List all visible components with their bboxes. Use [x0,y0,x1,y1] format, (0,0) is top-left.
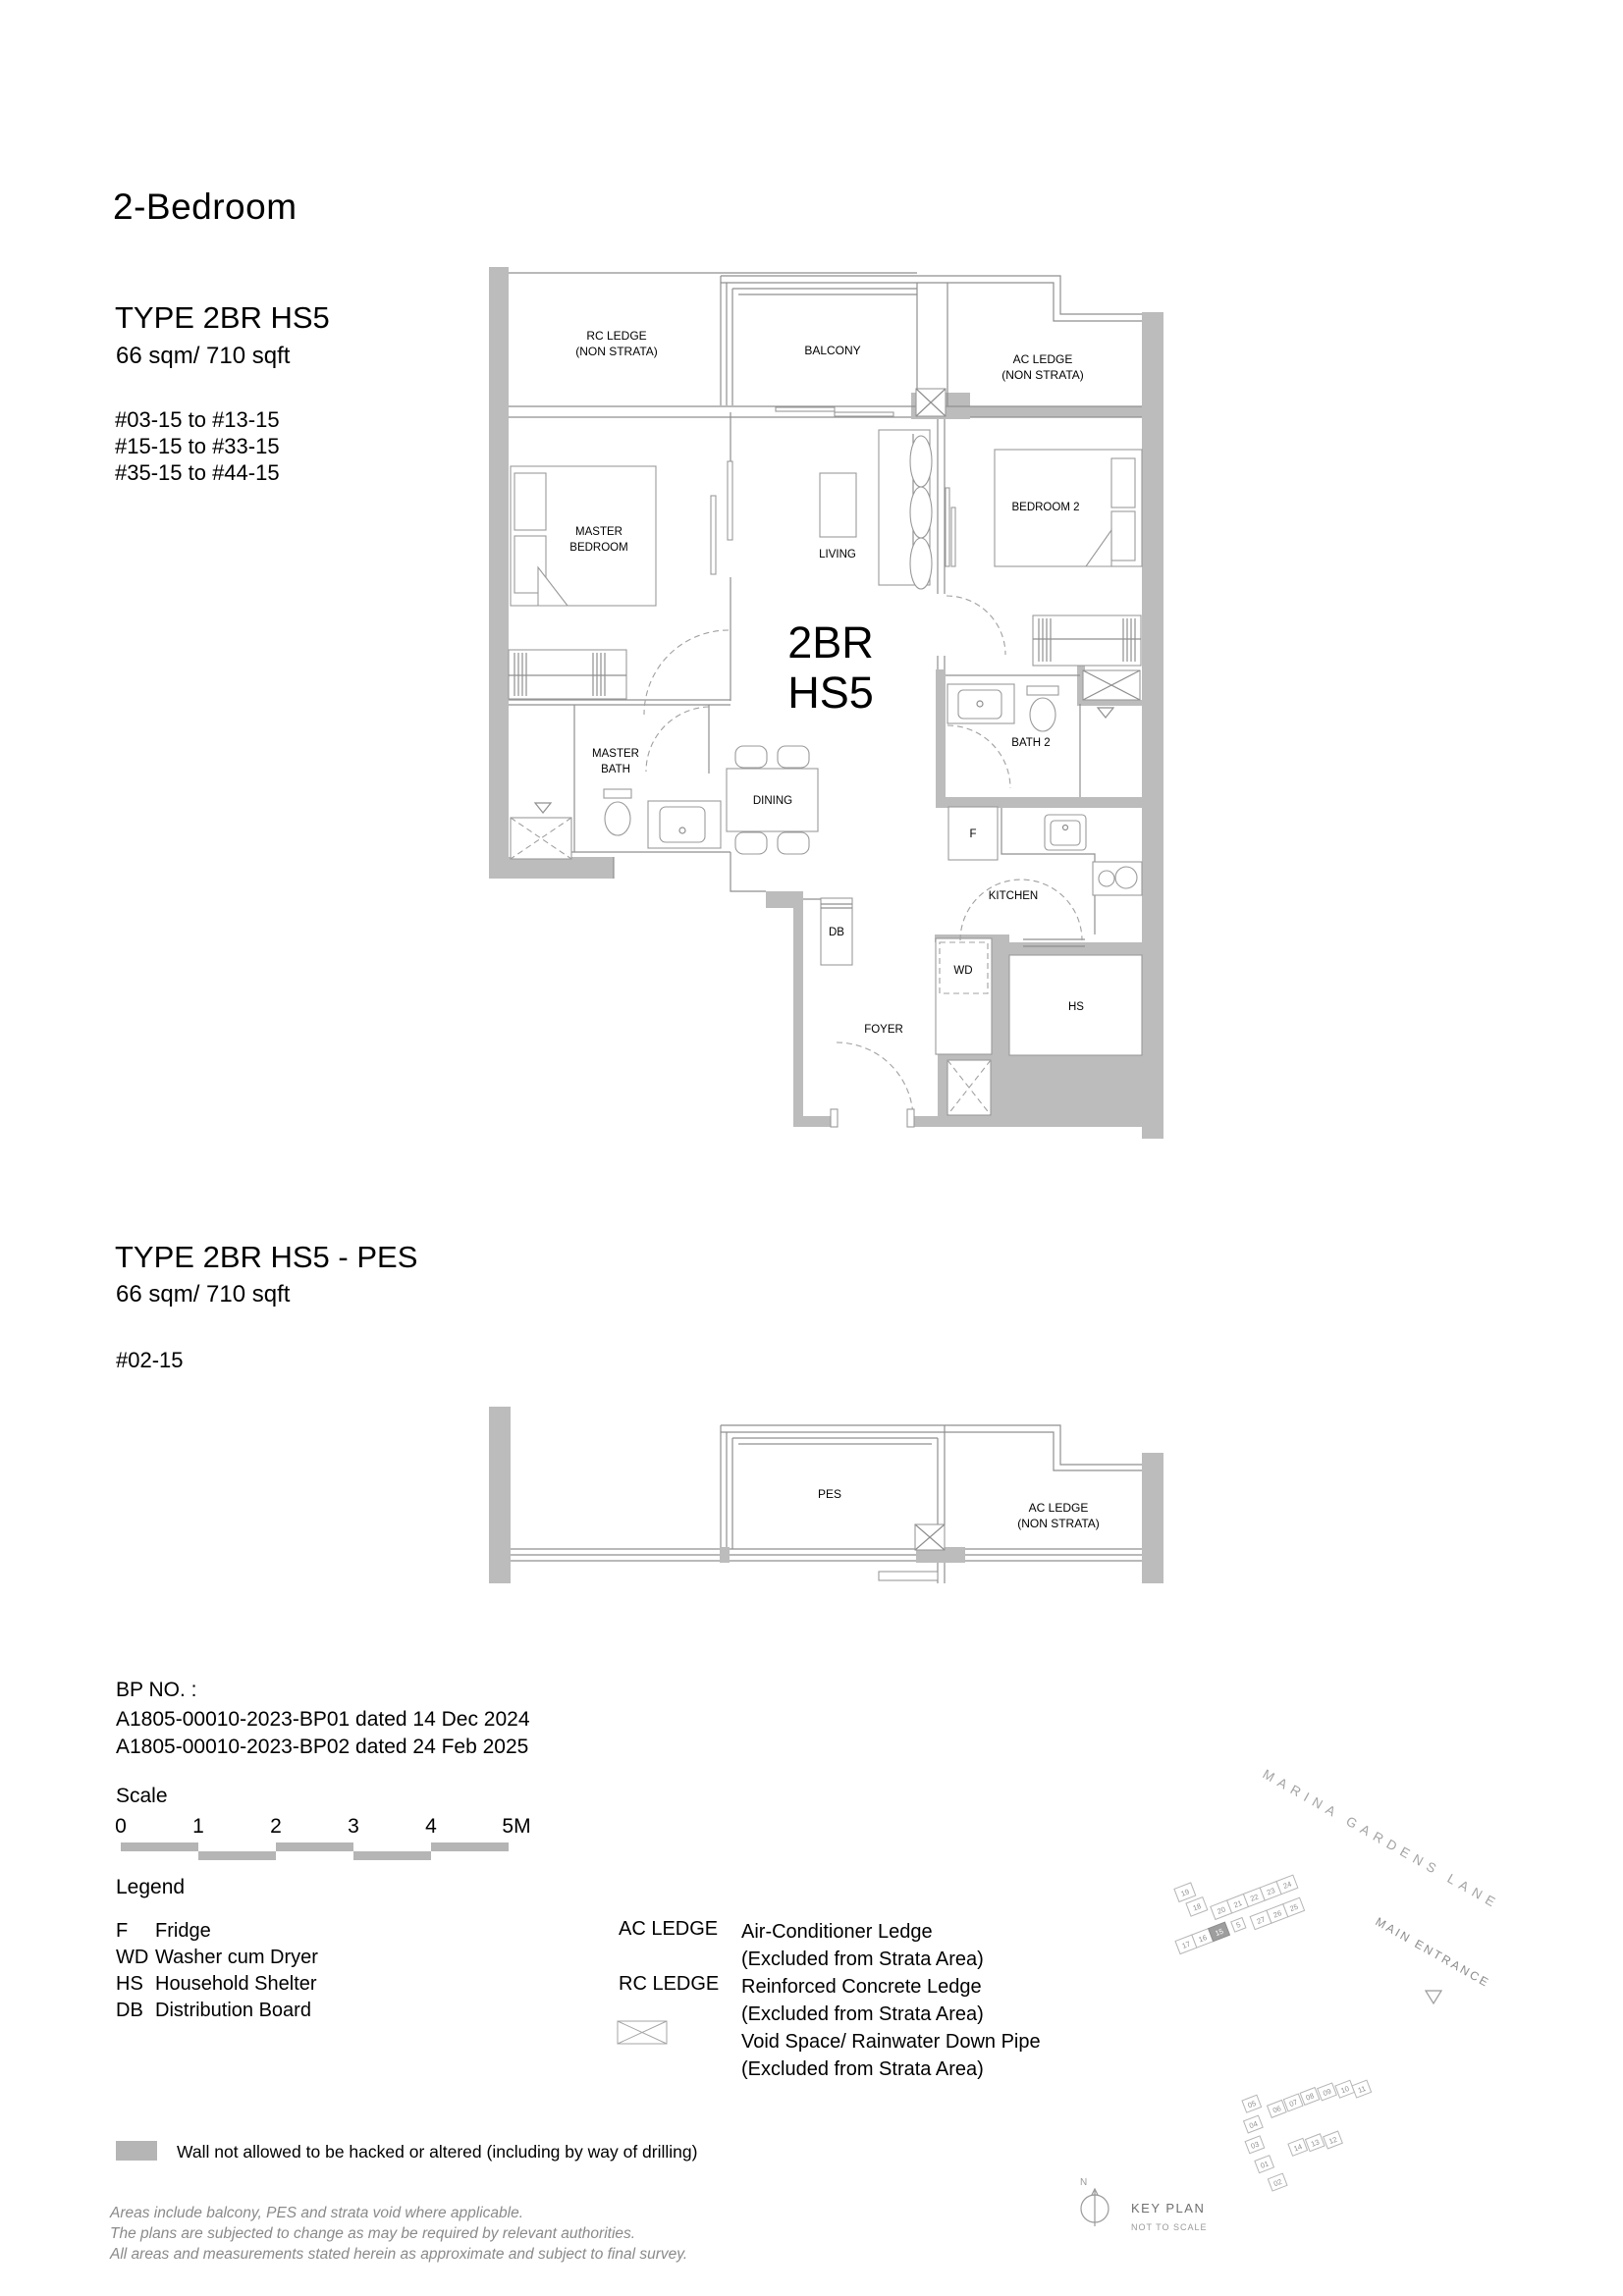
unit-a-levels: #03-15 to #13-15 #15-15 to #33-15 #35-15… [115,406,280,486]
road-label: MARINA GARDENS LANE [1261,1767,1503,1913]
bp-heading: BP NO. : [116,1679,196,1702]
legend-abbreviations: FFridge WDWasher cum Dryer HSHousehold S… [116,1918,318,2024]
keyplan-unit: 09 [1318,2083,1337,2101]
keyplan-unit: 14 [1288,2138,1308,2156]
keyplan-unit: 12 [1324,2131,1343,2149]
keyplan-unit: 5 [1231,1918,1246,1933]
legend-abbr: HS [116,1971,155,1998]
legend-item: WDWasher cum Dryer [116,1945,318,1971]
bp-line: A1805-00010-2023-BP02 dated 24 Feb 2025 [116,1734,530,1761]
keyplan-title: KEY PLAN [1131,2201,1205,2216]
scale-ticks: 0 1 2 3 4 5M [0,1815,589,1839]
room-label-db: DB [829,927,844,938]
keyplan-unit: 11 [1352,2080,1372,2098]
legend-desc: Distribution Board [155,2000,311,2021]
kitchen-fixtures [948,807,1142,895]
room-label-rc-ledge-note: (NON STRATA) [575,345,658,358]
north-label: N [1080,2177,1087,2188]
room-label-pes-ac-ledge: AC LEDGE [1029,1501,1089,1515]
unit-b-level-range: #02-15 [116,1347,184,1373]
room-label-bedroom2: BEDROOM 2 [1011,502,1079,513]
keyplan-unit: 06 [1268,2100,1287,2117]
room-label-master-bath: MASTER [592,748,639,760]
scale-tick: 0 [115,1815,127,1839]
scale-tick: 5M [502,1815,530,1839]
unit-a-level-range: #35-15 to #44-15 [115,459,280,486]
ledge-desc-line: Reinforced Concrete Ledge [741,1973,984,2001]
disclaimer-line: All areas and measurements stated herein… [110,2244,687,2265]
north-compass-icon: N [1080,2177,1109,2226]
keyplan-upper-cluster: 19 18 20 21 22 23 24 17 16 15 5 27 26 25 [1158,1847,1306,1957]
main-floor-plan: RC LEDGE (NON STRATA) BALCONY AC LEDGE (… [481,257,1178,1147]
scale-tick: 1 [192,1815,204,1839]
keyplan-unit: 05 [1242,2095,1262,2112]
keyplan-unit: 02 [1268,2173,1287,2191]
keyplan-unit: 01 [1255,2156,1274,2173]
entrance-arrow-icon [1426,1991,1441,2003]
balcony-sliding-door [776,407,893,416]
legend-ac-ledge-desc: Air-Conditioner Ledge (Excluded from Str… [741,1918,984,1973]
keyplan-unit: 08 [1300,2088,1320,2106]
room-label-living: LIVING [819,549,856,561]
room-label-fridge: F [969,828,976,840]
unit-b-area: 66 sqm/ 710 sqft [116,1281,290,1308]
keyplan-unit: 03 [1245,2136,1265,2154]
room-label-ac-ledge: AC LEDGE [1013,352,1073,366]
entrance-door-frame [831,1109,914,1127]
sofa [879,430,932,589]
legend-item: FFridge [116,1918,318,1945]
ledge-note-line: (Excluded from Strata Area) [741,2001,984,2028]
bp-line: A1805-00010-2023-BP01 dated 14 Dec 2024 [116,1706,530,1734]
keyplan-subtitle: NOT TO SCALE [1131,2222,1208,2232]
bedroom2-wardrobe [1033,615,1141,666]
unit-code-line1: 2BR [787,617,874,667]
scale-tick: 4 [425,1815,437,1839]
room-label-kitchen: KITCHEN [989,890,1038,902]
void-space-symbol [617,2020,668,2045]
keyplan-unit: 10 [1335,2080,1355,2098]
legend-desc: Fridge [155,1920,211,1942]
legend-abbr: F [116,1918,155,1945]
room-label-foyer: FOYER [864,1024,903,1036]
room-label-master-bedroom-2: BEDROOM [569,542,627,554]
unit-code-line2: HS5 [787,667,874,718]
page-title: 2-Bedroom [113,187,298,228]
master-wardrobe [509,650,626,699]
tv-console [820,473,856,537]
ledge-note-line: (Excluded from Strata Area) [741,2056,1041,2083]
legend-desc: Household Shelter [155,1973,317,1995]
scale-tick: 3 [348,1815,359,1839]
room-label-balcony: BALCONY [804,344,860,357]
pes-void-box [915,1524,945,1550]
room-label-rc-ledge: RC LEDGE [586,329,646,343]
bedroom2-sliding-door [946,488,955,566]
room-label-ac-ledge-note: (NON STRATA) [1001,368,1084,382]
unit-a-level-range: #03-15 to #13-15 [115,406,280,433]
key-plan-unit: 04 [1244,2115,1264,2133]
master-bedroom-sliding-door [711,461,732,574]
scale-heading: Scale [116,1785,168,1808]
keyplan-unit: 18 [1186,1897,1208,1917]
room-label-hs: HS [1068,1001,1084,1013]
room-label-dining: DINING [753,795,792,807]
pes-slider [879,1572,938,1580]
unit-a-level-range: #15-15 to #33-15 [115,433,280,459]
legend-heading: Legend [116,1876,185,1899]
keyplan-unit: 19 [1174,1883,1196,1902]
disclaimer-line: The plans are subjected to change as may… [110,2223,687,2244]
legend-void-desc: Void Space/ Rainwater Down Pipe (Exclude… [741,2028,1041,2083]
legend-desc: Washer cum Dryer [155,1947,318,1968]
legend-item: HSHousehold Shelter [116,1971,318,1998]
keyplan-lower-cluster: 05 04 03 06 07 08 09 10 11 01 14 13 12 0… [1231,2056,1392,2194]
key-plan: MARINA GARDENS LANE MAIN ENTRANCE 19 18 … [1041,1747,1551,2277]
room-label-pes-ac-ledge-note: (NON STRATA) [1017,1517,1100,1530]
keyplan-unit: 07 [1283,2094,1303,2111]
unit-b-levels: #02-15 [116,1347,184,1373]
room-label-bath2: BATH 2 [1011,737,1050,749]
room-label-master-bedroom: MASTER [575,526,622,538]
room-label-master-bath-2: BATH [601,764,630,775]
floorplan-page: 2-Bedroom TYPE 2BR HS5 66 sqm/ 710 sqft … [0,0,1623,2296]
bp-lines: A1805-00010-2023-BP01 dated 14 Dec 2024 … [116,1706,530,1761]
disclaimer-line: Areas include balcony, PES and strata vo… [110,2203,687,2223]
main-entrance-label: MAIN ENTRANCE [1374,1914,1493,1990]
disclaimer-block: Areas include balcony, PES and strata vo… [110,2203,687,2265]
legend-item: DBDistribution Board [116,1998,318,2024]
ledge-desc-line: Air-Conditioner Ledge [741,1918,984,1946]
unit-a-area: 66 sqm/ 710 sqft [116,343,290,370]
legend-ac-ledge-abbr: AC LEDGE [619,1918,718,1941]
keyplan-unit: 13 [1305,2134,1325,2152]
ledge-note-line: (Excluded from Strata Area) [741,1946,984,1973]
legend-abbr: DB [116,1998,155,2024]
legend-rc-ledge-abbr: RC LEDGE [619,1973,719,1996]
room-label-wd: WD [953,965,972,977]
wall-swatch [116,2141,157,2161]
legend-rc-ledge-desc: Reinforced Concrete Ledge (Excluded from… [741,1973,984,2028]
scale-tick: 2 [270,1815,282,1839]
wd-box [936,938,992,1054]
wall-note: Wall not allowed to be hacked or altered… [177,2142,697,2163]
ledge-desc-line: Void Space/ Rainwater Down Pipe [741,2028,1041,2056]
room-label-pes: PES [818,1487,841,1501]
unit-b-type: TYPE 2BR HS5 - PES [115,1240,417,1275]
legend-abbr: WD [116,1945,155,1971]
pes-partial-plan: PES AC LEDGE (NON STRATA) [481,1399,1178,1595]
unit-a-type: TYPE 2BR HS5 [115,300,330,336]
